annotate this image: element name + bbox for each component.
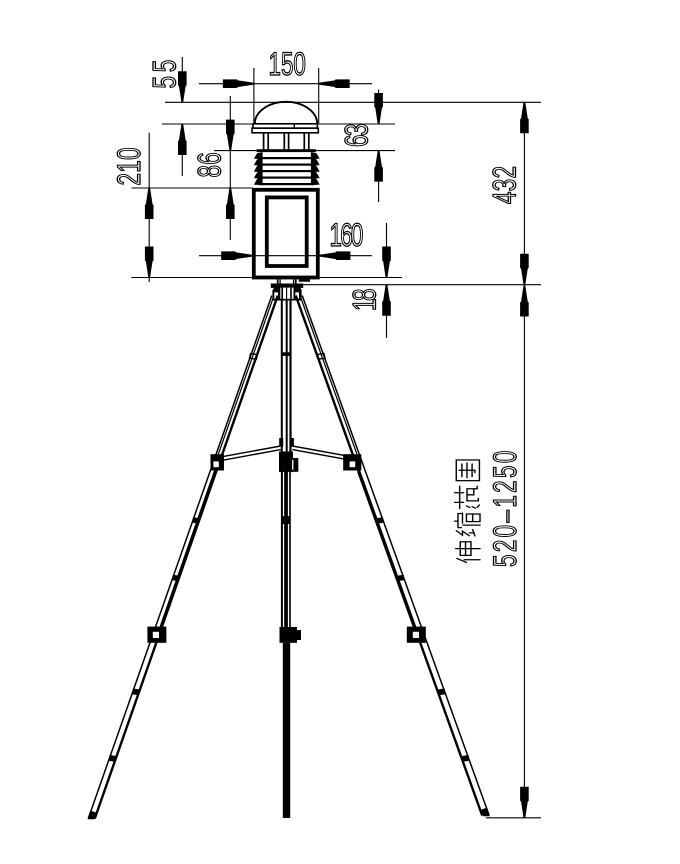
svg-text:432: 432 — [487, 166, 523, 204]
svg-text:18: 18 — [347, 289, 383, 311]
svg-text:86: 86 — [192, 152, 228, 178]
svg-text:63: 63 — [339, 124, 375, 147]
svg-text:210: 210 — [111, 147, 147, 185]
svg-text:520–1250: 520–1250 — [487, 448, 523, 567]
svg-text:160: 160 — [330, 217, 364, 253]
svg-text:150: 150 — [269, 46, 306, 82]
svg-text:55: 55 — [147, 56, 183, 89]
